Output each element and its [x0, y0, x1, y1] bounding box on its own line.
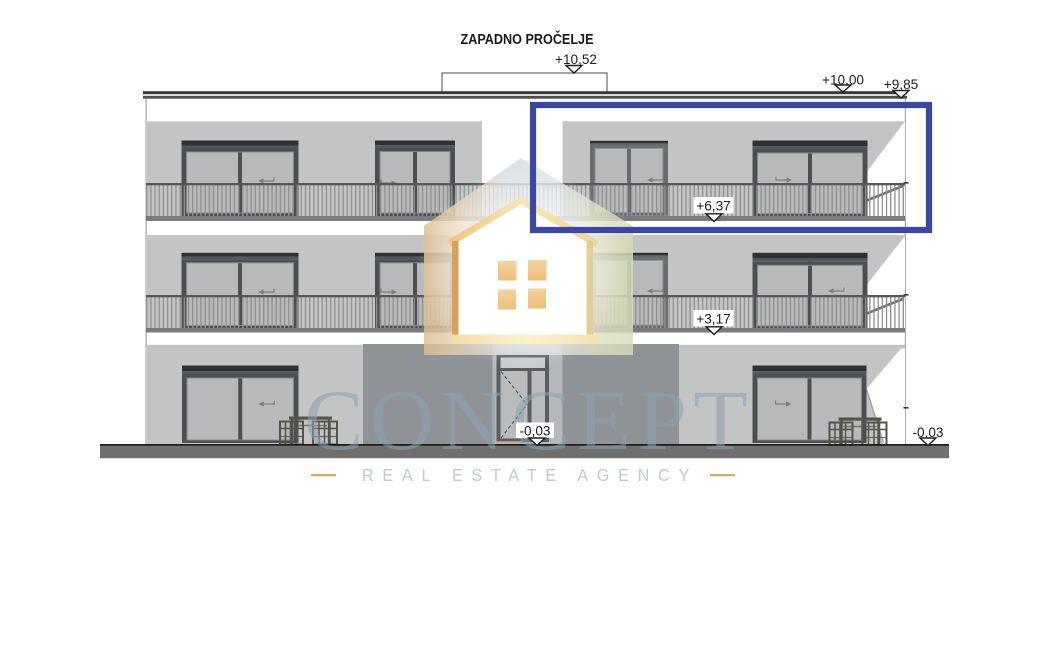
svg-text:-0,03: -0,03: [520, 424, 551, 439]
svg-text:+10,52: +10,52: [555, 52, 597, 67]
svg-text:+3,17: +3,17: [696, 312, 730, 327]
svg-text:+6,37: +6,37: [696, 199, 730, 214]
svg-text:CONCEPT: CONCEPT: [304, 372, 754, 468]
svg-text:+9,85: +9,85: [884, 77, 918, 92]
svg-text:REAL ESTATE AGENCY: REAL ESTATE AGENCY: [362, 465, 698, 485]
svg-text:ZAPADNO PROČELJE: ZAPADNO PROČELJE: [461, 30, 594, 48]
